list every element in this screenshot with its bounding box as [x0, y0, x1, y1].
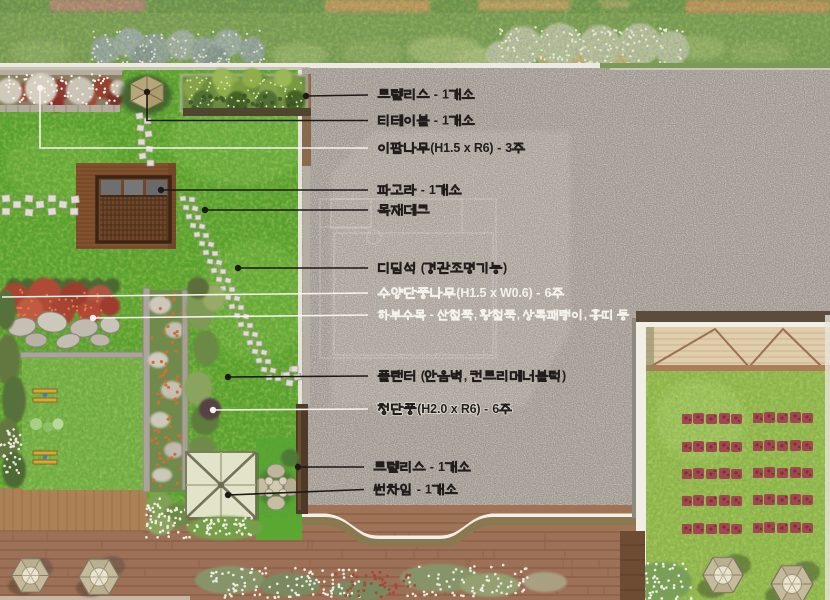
svg-text:W0.6): W0.6) — [500, 286, 533, 300]
svg-text:(H1.5: (H1.5 — [456, 286, 486, 300]
svg-text:-: - — [430, 460, 434, 474]
svg-text:-: - — [430, 309, 434, 322]
svg-text:-: - — [417, 483, 421, 497]
svg-text:-: - — [536, 286, 540, 300]
svg-text:,: , — [464, 369, 467, 383]
svg-text:,: , — [474, 309, 477, 322]
svg-text:6: 6 — [492, 402, 499, 416]
svg-text:,: , — [584, 309, 587, 322]
svg-text:): ) — [562, 369, 566, 383]
svg-text:1: 1 — [438, 460, 445, 474]
svg-text:-: - — [434, 88, 438, 102]
svg-text:6: 6 — [545, 286, 552, 300]
svg-text:-: - — [484, 402, 488, 416]
svg-text:1: 1 — [442, 114, 449, 128]
svg-text:x: x — [490, 286, 497, 300]
svg-text:1: 1 — [442, 88, 449, 102]
svg-text:,: , — [517, 309, 520, 322]
svg-text:(H2.0: (H2.0 — [417, 402, 447, 416]
svg-text:1: 1 — [425, 483, 432, 497]
svg-text:(H1.5: (H1.5 — [430, 141, 460, 155]
svg-text:R6): R6) — [461, 402, 481, 416]
svg-text:-: - — [421, 183, 425, 197]
svg-text:x: x — [464, 141, 471, 155]
svg-text:1: 1 — [429, 183, 436, 197]
svg-text:-: - — [434, 114, 438, 128]
svg-text:R6): R6) — [474, 141, 494, 155]
svg-text:3: 3 — [505, 141, 512, 155]
svg-text:x: x — [451, 402, 458, 416]
svg-text:-: - — [497, 141, 501, 155]
svg-text:): ) — [503, 261, 507, 275]
